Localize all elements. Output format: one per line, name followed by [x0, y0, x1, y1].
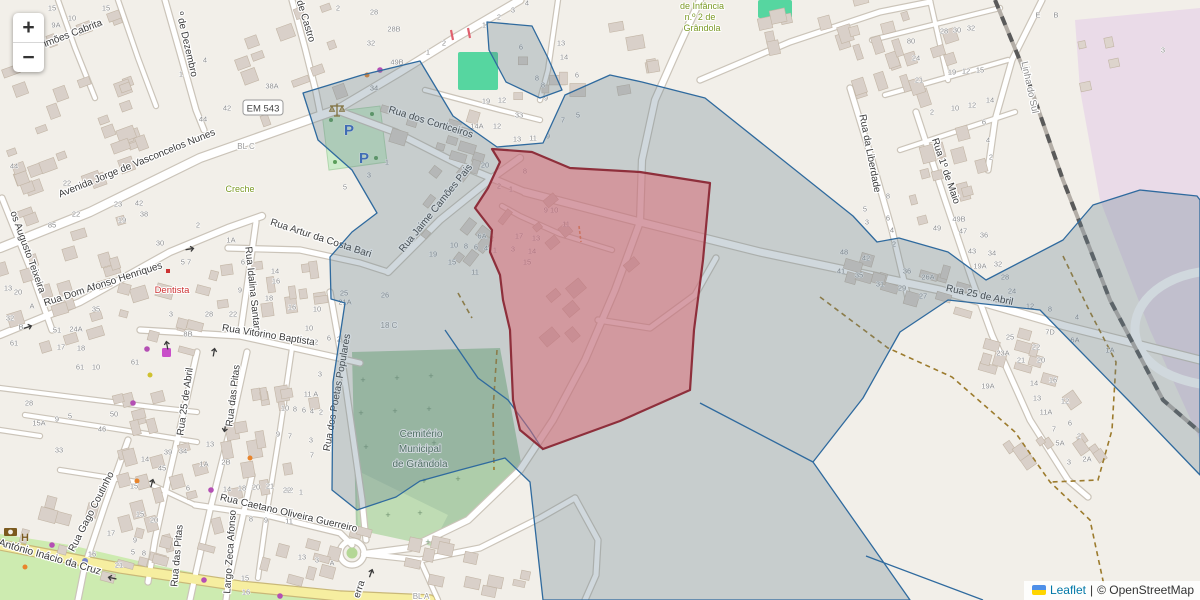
- house-number: 12: [962, 67, 970, 76]
- house-number: 5: [863, 205, 867, 214]
- map-canvas[interactable]: PPH++++++++++++++EM 5431515109A414422282…: [0, 0, 1200, 600]
- house-number: 18: [77, 344, 85, 353]
- building: [314, 295, 328, 304]
- house-number: 4: [525, 0, 529, 8]
- house-number: 2: [442, 39, 446, 48]
- house-number: 9: [133, 536, 137, 545]
- house-number: 1A: [199, 460, 208, 469]
- house-number: 38A: [265, 82, 278, 91]
- house-number: 13: [513, 135, 521, 144]
- building: [217, 299, 229, 308]
- poi-label: BL C: [237, 142, 255, 151]
- house-number: 20: [14, 288, 22, 297]
- house-number: 7D: [1045, 328, 1055, 337]
- house-number: 19A: [981, 382, 994, 391]
- shop-dot: [201, 577, 207, 583]
- house-number: 24: [912, 54, 920, 63]
- zoom-in-button[interactable]: +: [13, 13, 44, 42]
- house-number: 16: [88, 550, 96, 559]
- house-number: 39: [164, 448, 172, 457]
- house-number: 15A: [32, 419, 45, 428]
- building: [280, 388, 293, 399]
- house-number: B: [18, 323, 23, 332]
- house-number: 9A: [51, 21, 60, 30]
- house-number: 11A: [1040, 408, 1053, 417]
- house-number: 16: [242, 588, 250, 597]
- house-number: 22: [72, 210, 80, 219]
- house-number: 85: [48, 221, 56, 230]
- cemetery-cross: +: [417, 508, 422, 518]
- house-number: 3: [511, 6, 515, 15]
- house-number: 44: [199, 115, 207, 124]
- house-number: 33: [515, 111, 523, 120]
- house-number: E: [1035, 11, 1040, 20]
- cemetery-cross: +: [455, 474, 460, 484]
- house-number: 35: [92, 305, 100, 314]
- house-number: 16: [1049, 376, 1057, 385]
- house-number: 13: [1033, 394, 1041, 403]
- house-number: 12: [968, 101, 976, 110]
- health-poi-square: [166, 269, 170, 273]
- sports-pitch: [458, 52, 498, 90]
- house-number: 42: [223, 104, 231, 113]
- house-number: 24A: [69, 325, 82, 334]
- house-number: 46: [98, 425, 106, 434]
- house-number: 22: [1032, 343, 1040, 352]
- house-number: 47: [959, 227, 967, 236]
- building: [647, 60, 660, 73]
- shop-icon: [162, 348, 171, 357]
- building: [422, 548, 435, 563]
- house-number: 11 A: [304, 390, 318, 399]
- building: [626, 35, 645, 51]
- house-number: 5: [343, 183, 347, 192]
- house-number: 6: [327, 334, 331, 343]
- house-number: 61: [131, 358, 139, 367]
- house-number: 14: [986, 96, 994, 105]
- amenity-dot: [248, 456, 253, 461]
- house-number: 13: [557, 39, 565, 48]
- poi-label: n.º 2 de: [685, 12, 716, 22]
- house-number: 1: [426, 48, 430, 57]
- house-number: 14: [141, 455, 149, 464]
- poi-label: Dentista: [155, 285, 191, 296]
- house-number: 2: [1077, 432, 1081, 441]
- house-number: 10: [305, 324, 313, 333]
- house-number: 32: [994, 260, 1002, 269]
- house-number: 15: [136, 510, 144, 519]
- house-number: 14: [560, 53, 568, 62]
- house-number: 1A: [226, 236, 235, 245]
- house-number: 2: [497, 13, 501, 22]
- house-number: A: [329, 559, 334, 568]
- house-number: 34: [179, 447, 187, 456]
- house-number: 4: [310, 407, 314, 416]
- house-number: 5: [68, 412, 72, 421]
- house-number: 28: [940, 27, 948, 36]
- house-number: 7: [288, 432, 292, 441]
- roundabout-island: [347, 548, 358, 559]
- house-number: 2: [336, 4, 340, 13]
- house-number: 9: [264, 516, 268, 525]
- house-number: 20: [150, 516, 158, 525]
- house-number: 18: [265, 294, 273, 303]
- house-number: 19: [118, 216, 126, 225]
- house-number: 49B: [952, 215, 965, 224]
- house-number: 1: [482, 21, 486, 30]
- zoom-out-button[interactable]: −: [13, 42, 44, 72]
- house-number: 50: [110, 410, 118, 419]
- house-number: 17: [107, 529, 115, 538]
- house-number: 2: [196, 221, 200, 230]
- house-number: 6: [186, 484, 190, 493]
- house-number: 1: [179, 70, 183, 79]
- house-number: 8: [142, 549, 146, 558]
- house-number: 8: [293, 405, 297, 414]
- house-number: 49: [933, 224, 941, 233]
- house-number: 32: [967, 24, 975, 33]
- house-number: 23: [114, 200, 122, 209]
- house-number: 51: [53, 326, 61, 335]
- house-number: 10: [313, 305, 321, 314]
- house-number: 6: [886, 214, 890, 223]
- house-number: 14: [1030, 379, 1038, 388]
- building: [514, 93, 523, 100]
- building: [848, 25, 859, 36]
- building: [920, 168, 930, 179]
- house-number: 42: [135, 199, 143, 208]
- house-number: 21: [115, 561, 123, 570]
- house-number: 22: [283, 486, 291, 495]
- house-number: 28: [205, 310, 213, 319]
- house-number: 16: [288, 303, 296, 312]
- camera-icon-lens: [8, 530, 13, 535]
- building: [283, 463, 293, 476]
- building: [1104, 37, 1114, 49]
- amenity-dot: [23, 565, 28, 570]
- building: [559, 72, 567, 85]
- attribution-bar: Leaflet|© OpenStreetMap: [1024, 581, 1200, 600]
- house-number: 12: [493, 122, 501, 131]
- house-number: 10: [951, 104, 959, 113]
- building: [437, 541, 454, 556]
- shop-dot: [49, 542, 55, 548]
- building: [261, 302, 274, 317]
- house-number: A: [29, 302, 34, 311]
- shop-dot: [144, 346, 150, 352]
- house-number: 36: [980, 231, 988, 240]
- house-number: 15: [102, 4, 110, 13]
- house-number: 45: [158, 464, 166, 473]
- house-number: 33: [55, 446, 63, 455]
- building: [769, 8, 787, 24]
- house-number: 19A: [973, 262, 986, 271]
- building: [520, 570, 531, 580]
- house-number: 6: [575, 71, 579, 80]
- house-number: 17: [57, 343, 65, 352]
- house-number: 2A: [1082, 455, 1091, 464]
- house-number: 38: [140, 210, 148, 219]
- house-number: 9: [238, 286, 242, 295]
- building: [1108, 58, 1119, 68]
- house-number: 21: [1017, 356, 1025, 365]
- road-shield-text: EM 543: [247, 104, 280, 115]
- house-number: 7: [1052, 425, 1056, 434]
- shop-dot: [277, 593, 283, 599]
- house-number: 6: [982, 118, 986, 127]
- ukraine-flag-icon: [1032, 585, 1046, 595]
- house-number: 12: [498, 96, 506, 105]
- house-number: 10: [68, 14, 76, 23]
- osm-attribution: © OpenStreetMap: [1097, 583, 1194, 597]
- poi-label: Grândola: [683, 23, 720, 33]
- building: [1078, 40, 1086, 48]
- house-number: 23A: [996, 349, 1009, 358]
- house-number: B: [1053, 11, 1058, 20]
- house-number: 4: [890, 226, 894, 235]
- house-number: 9: [55, 415, 59, 424]
- house-number: 32: [6, 314, 14, 323]
- house-number: 13: [298, 553, 306, 562]
- house-number: 13: [206, 440, 214, 449]
- tree-dot: [333, 160, 337, 164]
- leaflet-attribution-link[interactable]: Leaflet: [1050, 583, 1086, 597]
- house-number: 19: [948, 68, 956, 77]
- poi-label: BL A: [413, 592, 430, 600]
- building: [288, 286, 296, 299]
- house-number: 30: [953, 26, 961, 35]
- building: [408, 537, 423, 553]
- building: [241, 461, 256, 478]
- house-number: 3: [318, 370, 322, 379]
- cemetery-cross: +: [385, 510, 390, 520]
- house-number: 22: [229, 310, 237, 319]
- house-number: 61: [76, 363, 84, 372]
- house-number: 3: [865, 218, 869, 227]
- house-number: 15: [130, 482, 138, 491]
- house-number: 20: [252, 483, 260, 492]
- house-number: 20: [1037, 356, 1045, 365]
- house-number: 5: [131, 548, 135, 557]
- house-number: 14: [271, 267, 279, 276]
- zoom-control: + −: [13, 13, 44, 72]
- house-number: 15: [48, 4, 56, 13]
- house-number: 3: [309, 436, 313, 445]
- house-number: 10: [281, 404, 289, 413]
- house-number: 19: [482, 97, 490, 106]
- shop-dot: [208, 487, 214, 493]
- house-number: 1: [299, 488, 303, 497]
- building: [299, 289, 308, 300]
- house-number: 9: [276, 430, 280, 439]
- house-number: 3: [1161, 46, 1165, 55]
- house-number: 43: [968, 247, 976, 256]
- house-number: 8: [249, 515, 253, 524]
- building: [1079, 81, 1091, 92]
- house-number: 15: [976, 66, 984, 75]
- house-number: 2: [930, 108, 934, 117]
- house-number: 6: [302, 406, 306, 415]
- amenity-dot-yellow: [148, 373, 153, 378]
- building: [220, 264, 233, 276]
- house-number: 3: [315, 556, 319, 565]
- house-number: 30: [156, 239, 164, 248]
- house-number: 4: [203, 56, 207, 65]
- house-number: 44: [10, 162, 18, 171]
- house-number: 28: [370, 8, 378, 17]
- house-number: 25: [1006, 333, 1014, 342]
- house-number: 2B: [221, 458, 230, 467]
- house-number: 34: [988, 249, 996, 258]
- attribution-separator: |: [1090, 583, 1093, 597]
- house-number: 12: [1061, 397, 1069, 406]
- building: [463, 551, 478, 564]
- house-number: 10: [92, 363, 100, 372]
- house-number: 8: [886, 192, 890, 201]
- house-number: 32: [367, 39, 375, 48]
- house-number: 2: [319, 408, 323, 417]
- house-number: 11: [529, 134, 537, 143]
- house-number: 21: [915, 76, 923, 85]
- house-number: 28: [25, 399, 33, 408]
- house-number: 7: [310, 451, 314, 460]
- map-tiles: PPH++++++++++++++EM 5431515109A414422282…: [0, 0, 1200, 600]
- cemetery-cross: +: [425, 537, 430, 547]
- house-number: 5 7: [181, 258, 191, 267]
- house-number: 3: [169, 310, 173, 319]
- house-number: 16: [272, 277, 280, 286]
- house-number: 2: [989, 153, 993, 162]
- building: [176, 318, 188, 330]
- house-number: 15: [241, 574, 249, 583]
- house-number: 28B: [387, 25, 400, 34]
- house-number: 80: [907, 37, 915, 46]
- poi-label: Creche: [225, 184, 254, 194]
- road-shield: EM 543: [243, 100, 283, 115]
- house-number: 8B: [183, 330, 192, 339]
- shop-dot: [130, 400, 136, 406]
- building: [234, 421, 248, 434]
- house-number: 61: [10, 339, 18, 348]
- building: [147, 330, 159, 342]
- house-number: 5A: [1055, 439, 1064, 448]
- house-number: 4: [986, 136, 990, 145]
- house-number: 18: [238, 484, 246, 493]
- house-number: 3: [1067, 458, 1071, 467]
- poi-label: de Infância: [680, 1, 724, 11]
- house-number: 21: [266, 482, 274, 491]
- house-number: 13: [4, 284, 12, 293]
- house-number: 6: [1068, 419, 1072, 428]
